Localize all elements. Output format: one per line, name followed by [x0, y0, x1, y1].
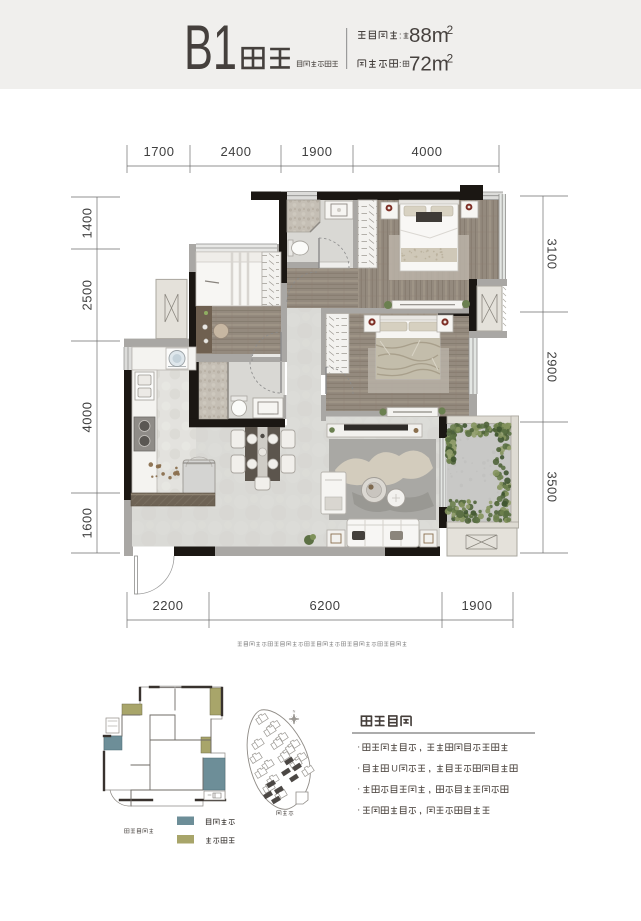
svg-text:·: ·	[357, 805, 360, 816]
svg-text::: :	[399, 31, 402, 41]
svg-text:U: U	[391, 764, 398, 774]
svg-text::: :	[399, 59, 402, 69]
svg-text:1400: 1400	[79, 208, 94, 239]
svg-text:88m: 88m	[409, 24, 449, 47]
svg-text:·: ·	[357, 742, 360, 753]
svg-text:2: 2	[447, 52, 454, 66]
svg-text:2500: 2500	[79, 280, 94, 311]
svg-text:1900: 1900	[462, 598, 493, 613]
svg-text:·: ·	[357, 763, 360, 774]
svg-text:2: 2	[447, 23, 454, 37]
svg-text:1700: 1700	[144, 144, 175, 159]
svg-text:2200: 2200	[153, 598, 184, 613]
svg-text:1600: 1600	[79, 508, 94, 539]
svg-text:·: ·	[357, 784, 360, 795]
svg-text:4000: 4000	[412, 144, 443, 159]
svg-text:3500: 3500	[545, 472, 560, 503]
svg-text:3100: 3100	[545, 239, 560, 270]
svg-text:1900: 1900	[302, 144, 333, 159]
svg-text:72m: 72m	[409, 53, 449, 76]
svg-text:4000: 4000	[79, 402, 94, 433]
svg-text:N: N	[293, 710, 296, 714]
svg-text:6200: 6200	[310, 598, 341, 613]
svg-text:2900: 2900	[545, 352, 560, 383]
svg-text:2400: 2400	[221, 144, 252, 159]
svg-text:B1: B1	[184, 13, 237, 83]
